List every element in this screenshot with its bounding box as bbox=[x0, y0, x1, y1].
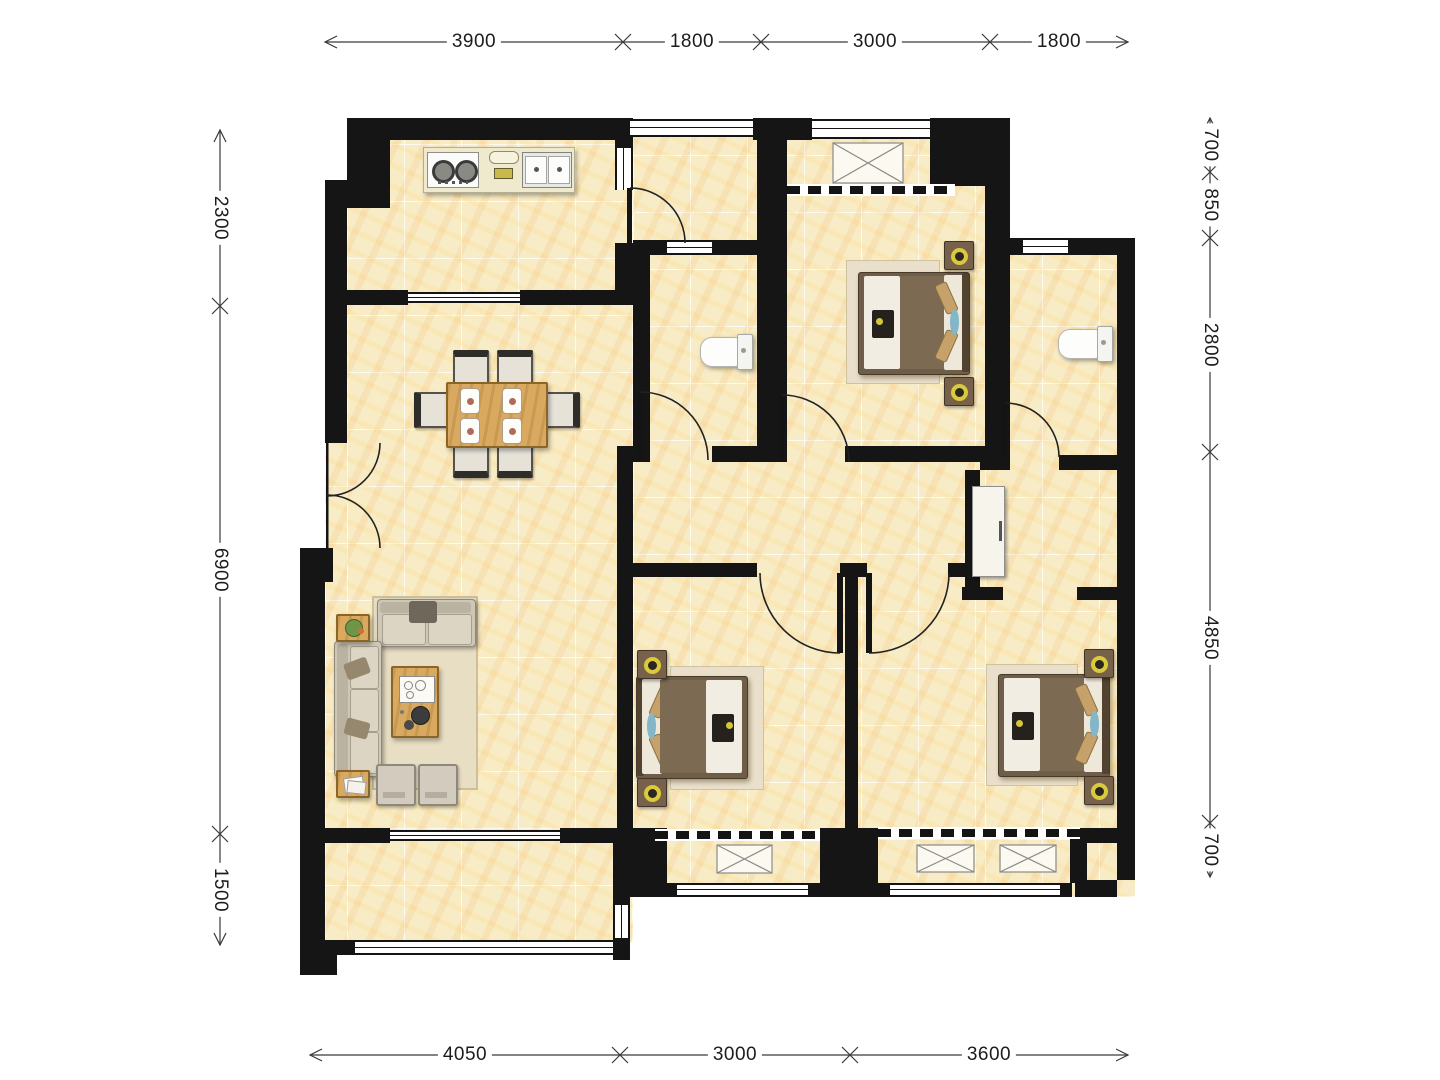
loveseat bbox=[377, 599, 476, 647]
wall-step bbox=[325, 195, 368, 207]
wall bbox=[878, 883, 890, 897]
lamp-icon bbox=[644, 785, 661, 802]
wall bbox=[1060, 883, 1072, 897]
nightstand bbox=[944, 377, 974, 406]
ottoman bbox=[376, 764, 416, 806]
dim-right-3: 2800 bbox=[1199, 318, 1221, 372]
plant-flower bbox=[358, 628, 364, 634]
wall-balcony-block bbox=[630, 828, 667, 897]
burner-icon bbox=[455, 160, 478, 183]
wall-balcony-right bbox=[613, 938, 630, 960]
wall-balcony-divider bbox=[820, 828, 878, 897]
dim-left-2: 6900 bbox=[209, 543, 231, 597]
wall-living-bottom bbox=[300, 828, 390, 843]
wall bbox=[325, 940, 355, 955]
ottoman-base bbox=[425, 792, 447, 798]
dim-bottom-1: 4050 bbox=[438, 1044, 492, 1066]
wall-bedroom1-left bbox=[617, 462, 633, 843]
wall bbox=[617, 446, 640, 462]
window-bedroom3-balcony bbox=[890, 883, 1060, 897]
nightstand bbox=[637, 650, 667, 679]
window-bath1 bbox=[667, 240, 712, 255]
wall bbox=[845, 446, 985, 462]
dim-right-4: 4850 bbox=[1199, 611, 1221, 665]
dining-chair bbox=[497, 444, 533, 478]
ottoman-base bbox=[383, 792, 405, 798]
sink-basin bbox=[548, 156, 570, 184]
wall-corner bbox=[1075, 880, 1117, 897]
wall-bath2-top bbox=[995, 238, 1023, 255]
lamp-icon bbox=[951, 384, 968, 401]
dim-right-1: 700 bbox=[1199, 123, 1221, 166]
dim-top-1: 3900 bbox=[447, 31, 501, 53]
wall-living-bottom bbox=[560, 828, 630, 843]
dim-right-2: 850 bbox=[1199, 183, 1221, 226]
nightstand bbox=[944, 241, 974, 270]
kettle-icon bbox=[411, 706, 430, 725]
place-setting-icon bbox=[502, 418, 522, 444]
floor-plan-canvas: 3900 1800 3000 1800 4050 3000 3600 2300 … bbox=[0, 0, 1440, 1080]
nightstand bbox=[637, 778, 667, 807]
dining-chair bbox=[414, 392, 448, 428]
dim-right-5: 700 bbox=[1199, 828, 1221, 871]
wall-bath2-bottom bbox=[1059, 455, 1117, 470]
wall-hall-bottom bbox=[617, 563, 757, 577]
wall bbox=[808, 883, 820, 897]
sofa-three-seat bbox=[334, 641, 382, 777]
window-living-balcony bbox=[355, 940, 613, 955]
wall-nook-bottom bbox=[1077, 587, 1117, 600]
wall-kitchen-divider bbox=[520, 290, 617, 305]
wall-left-upper bbox=[325, 180, 347, 443]
kitchen-pass-through bbox=[408, 292, 520, 303]
wall bbox=[1080, 828, 1117, 843]
control-panel-icon bbox=[494, 168, 513, 179]
dim-top-3: 3000 bbox=[848, 31, 902, 53]
window-utility-balcony bbox=[630, 119, 753, 137]
coffee-table bbox=[391, 666, 439, 738]
burner-icon bbox=[432, 160, 455, 183]
dining-chair bbox=[453, 444, 489, 478]
wall-bath1-left bbox=[633, 240, 650, 462]
wall-balcony-right bbox=[613, 843, 630, 905]
side-table bbox=[336, 614, 370, 642]
living-balcony-opening bbox=[390, 830, 560, 841]
sofa-tray bbox=[409, 601, 437, 623]
tea-tray bbox=[399, 676, 435, 703]
wall-bedroom2-right bbox=[985, 118, 1010, 470]
wall-bath2-bottom bbox=[980, 455, 1002, 470]
window-bedroom2 bbox=[812, 119, 930, 139]
nightstand bbox=[1084, 649, 1114, 678]
dim-top-2: 1800 bbox=[665, 31, 719, 53]
window-kitchen-glass bbox=[615, 148, 633, 190]
wall-left-lower bbox=[300, 548, 325, 975]
wall-niche-block bbox=[930, 140, 985, 186]
wardrobe-handle bbox=[999, 521, 1002, 541]
wall bbox=[712, 446, 782, 462]
dim-bottom-2: 3000 bbox=[708, 1044, 762, 1066]
wall-bedroom1-right bbox=[845, 575, 858, 828]
place-setting-icon bbox=[460, 388, 480, 414]
wall-kitchen-right bbox=[615, 243, 633, 305]
wall-kitchen-top bbox=[367, 118, 630, 140]
side-table bbox=[336, 770, 370, 798]
dim-top-4: 1800 bbox=[1032, 31, 1086, 53]
dim-left-1: 2300 bbox=[209, 191, 231, 245]
lamp-icon bbox=[644, 657, 661, 674]
wall bbox=[753, 118, 812, 140]
wall-right-exterior bbox=[1117, 238, 1135, 880]
cup-icon bbox=[400, 710, 404, 714]
ottoman bbox=[418, 764, 458, 806]
wall bbox=[667, 883, 677, 897]
place-setting-icon bbox=[460, 418, 480, 444]
lamp-icon bbox=[1091, 783, 1108, 800]
wall-bedroom2-left bbox=[757, 138, 787, 462]
toilet-bath1 bbox=[700, 334, 752, 368]
dim-bottom-3: 3600 bbox=[962, 1044, 1016, 1066]
wall-nook-bottom bbox=[962, 587, 1003, 600]
wardrobe-cabinet bbox=[972, 486, 1005, 577]
window-balcony-side bbox=[613, 905, 630, 938]
window-bedroom1-balcony bbox=[677, 883, 808, 897]
books-icon bbox=[346, 780, 366, 795]
place-setting-icon bbox=[502, 388, 522, 414]
dining-chair bbox=[546, 392, 580, 428]
bedroom1-bed bbox=[634, 674, 750, 779]
cooktop-knobs bbox=[438, 181, 468, 184]
lamp-icon bbox=[1091, 656, 1108, 673]
double-sink bbox=[522, 152, 572, 188]
dim-left-3: 1500 bbox=[209, 863, 231, 917]
gas-cooktop bbox=[427, 152, 479, 188]
range-hood-icon bbox=[489, 151, 519, 164]
window-bath2 bbox=[1023, 238, 1068, 255]
wall-kitchen-divider bbox=[325, 290, 408, 305]
nightstand bbox=[1084, 776, 1114, 805]
cup-icon bbox=[404, 720, 414, 730]
dining-chair bbox=[453, 350, 489, 384]
toilet-bath2 bbox=[1058, 326, 1112, 360]
bedroom3-bed bbox=[996, 672, 1112, 777]
dining-chair bbox=[497, 350, 533, 384]
bedroom2-bed bbox=[856, 270, 972, 375]
sink-basin bbox=[525, 156, 547, 184]
lamp-icon bbox=[951, 248, 968, 265]
floor-left-wing bbox=[347, 118, 633, 943]
